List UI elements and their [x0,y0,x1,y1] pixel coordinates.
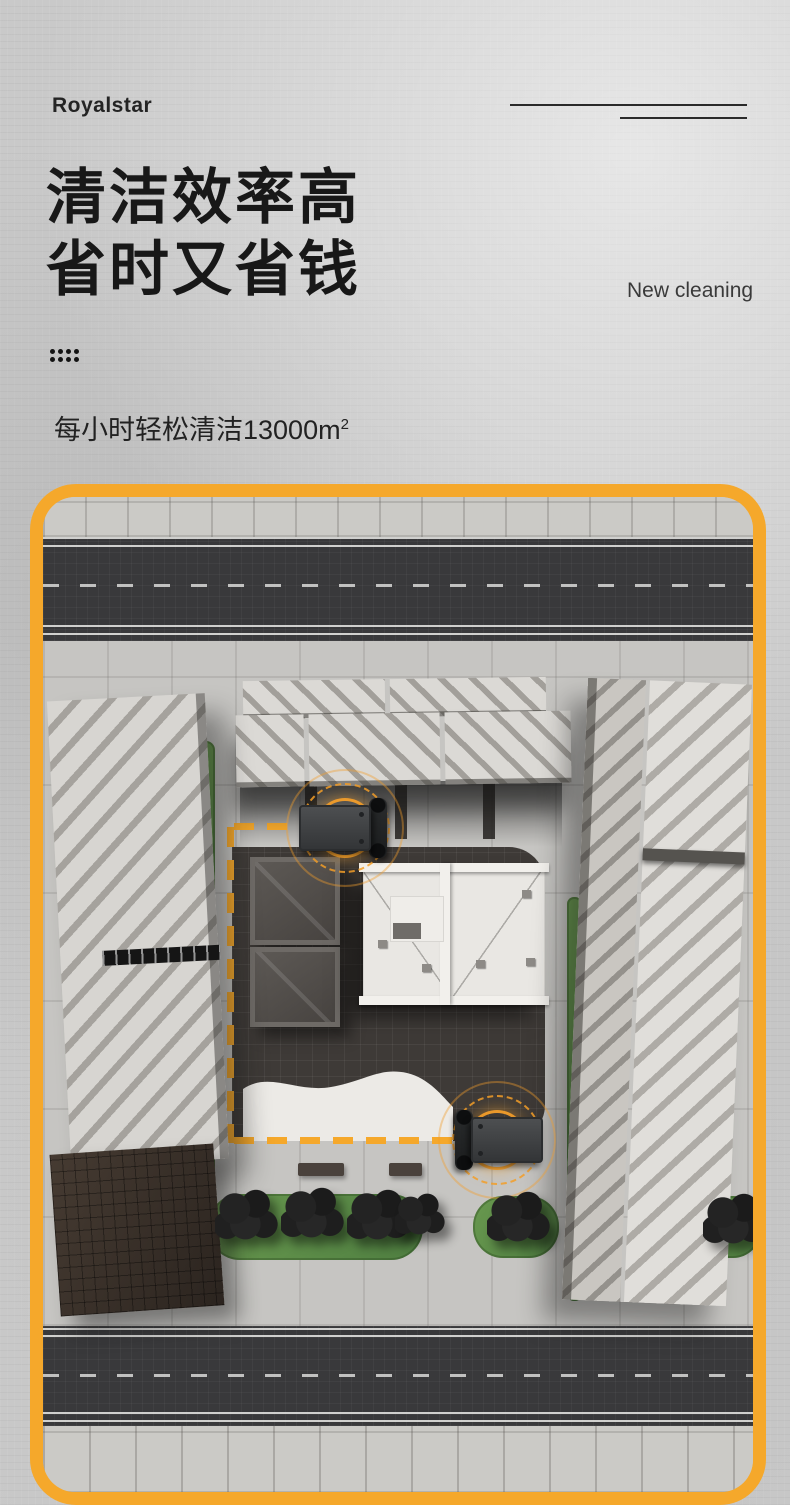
subtitle-superscript: 2 [341,416,349,433]
roof-vent [378,940,387,948]
subtitle: 每小时轻松清洁13000m2 [54,408,349,447]
brand-logo: Royalstar [52,94,152,118]
cleaning-robot-bottom [435,1078,559,1202]
road-line [43,1412,753,1414]
aerial-scene [43,497,753,1492]
road-line [43,537,753,539]
road-line [43,625,753,627]
facade-column [483,781,495,839]
headline-line-2: 省时又省钱 [46,234,361,306]
tree [395,1191,447,1241]
road-center-dash [43,584,753,587]
roof-vent [422,964,431,972]
roof-slab [444,711,571,785]
cleaning-robot-top [283,766,407,890]
roof-vent [526,958,535,966]
bench [298,1163,344,1176]
storage-container-bottom [250,947,340,1027]
header-rule-short [620,117,747,119]
dashed-route-bottom [234,1137,456,1144]
header-rule-long [510,104,747,106]
road-line [43,545,753,547]
bottom-road [43,1326,753,1426]
robot-body [299,805,371,851]
dashed-route-vertical [227,827,234,1143]
robot-rig [283,766,407,890]
bench [389,1163,422,1176]
poster: Royalstar 清洁效率高 省时又省钱 New cleaning 每小时轻松… [0,0,790,1505]
scene-frame [30,484,766,1505]
sidewalk-bottom [43,1426,753,1492]
road-line [43,633,753,635]
road-line [43,1420,753,1422]
robot-body [471,1117,543,1163]
tree [703,1191,753,1251]
road-center-dash [43,1374,753,1377]
tree [215,1187,281,1247]
robot-rig [435,1078,559,1202]
roof-hatch [390,896,444,942]
white-curved-path [243,1063,453,1141]
roof-flange-bottom [359,996,549,1005]
road-line [43,1328,753,1330]
left-striped-building [47,693,229,1167]
brown-building [50,1143,225,1316]
tree [281,1185,347,1245]
tree [487,1189,553,1249]
top-road [43,537,753,641]
headline: 清洁效率高 省时又省钱 [46,162,361,306]
tagline-text: New cleaning [627,279,753,303]
subtitle-text: 每小时轻松清洁13000m [54,415,341,445]
robot-brush-head [369,798,387,858]
dots-grid-icon [50,349,79,362]
sidewalk-top [43,497,753,537]
roof-vent [522,890,531,898]
headline-line-1: 清洁效率高 [46,162,361,234]
road-line [43,1335,753,1337]
roof-vent [476,960,485,968]
window-band [102,945,221,966]
